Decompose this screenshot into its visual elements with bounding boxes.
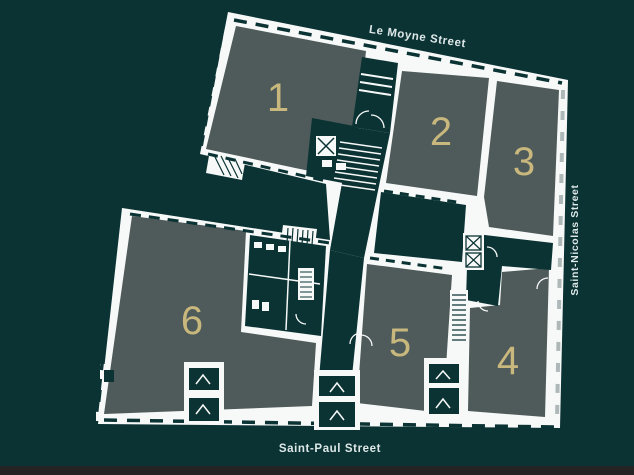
- street-label-saint-nicolas: Saint-Nicolas Street: [569, 184, 581, 295]
- unit-4-label[interactable]: 4: [497, 339, 519, 383]
- unit-5-label[interactable]: 5: [389, 321, 411, 365]
- bottom-bar: [0, 466, 634, 475]
- unit-1-label[interactable]: 1: [267, 76, 289, 120]
- ground-floor-page: GROUND FLOOR: [0, 0, 634, 475]
- street-label-saint-paul: Saint-Paul Street: [279, 443, 381, 455]
- floor-plan: 1 2 3 4 5 6 Le Moyne Street Saint-Nicola…: [0, 0, 634, 475]
- unit-3-label[interactable]: 3: [513, 140, 535, 184]
- unit-6-label[interactable]: 6: [181, 299, 203, 343]
- unit-2-label[interactable]: 2: [430, 110, 452, 154]
